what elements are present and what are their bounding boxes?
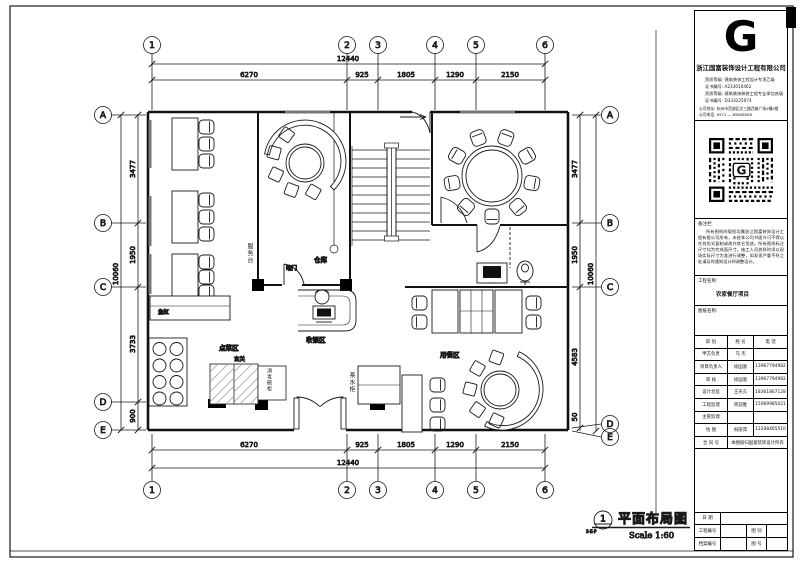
dim-total-height: 10060 (112, 263, 120, 285)
cell-phone: 13967794982 (754, 361, 787, 374)
project-no-label: 工程编号 (695, 525, 721, 538)
dim-bottom: 925 (355, 441, 368, 449)
date-row: 日 期 (695, 513, 787, 526)
label-tea-cabinet: 茶水柜 (348, 372, 354, 393)
cred-label: 证书编号: (705, 98, 723, 103)
floor-plan-drawing: 1 2 3 4 5 6 12440 6270 925 1805 1290 215… (0, 0, 800, 566)
sheet-title-callout: 1 S-E-P 平面布局图 Scale 1:60 (586, 511, 690, 541)
dim-top: 2150 (501, 71, 519, 79)
grid-row-label: E (607, 433, 613, 443)
grid-row-label: D (100, 398, 107, 408)
notes-section: 备注栏 所有图纸的版权均属浙江国富装饰设计工程有限公司所有，未经本公司书面许可不… (695, 219, 787, 276)
cell-phone: 18361867128 (754, 386, 787, 399)
cell-role: 设计总监 (695, 386, 728, 399)
dim-left: 3477 (129, 160, 137, 178)
drawing-sheet: 1 2 3 4 5 6 12440 6270 925 1805 1290 215… (0, 0, 800, 566)
project-name-label: 工程名称: (698, 278, 784, 284)
grid-row-label: E (100, 426, 106, 436)
cell-phone: 13967794982 (754, 374, 787, 387)
grid-col-label: 3 (375, 486, 381, 496)
file-no-value (721, 538, 747, 551)
type-value (767, 525, 787, 538)
dim-right: 1950 (571, 246, 579, 264)
grid-col-label: 4 (432, 486, 438, 496)
foyer-cabinet (210, 364, 286, 404)
grid-bottom: 6270 925 1805 1290 2150 12440 1 2 3 4 5 … (144, 434, 554, 499)
contract-note: 本图纸归国富装饰设计所有 (728, 437, 787, 450)
qr-code: G (709, 138, 773, 202)
grid-col-label: 5 (473, 41, 479, 51)
type-label: 图 别 (747, 525, 767, 538)
cred-value: A233010462 (725, 84, 752, 89)
address-value: 杭州市西湖区文三路西城广场2幢5楼 (717, 106, 779, 111)
grid-col-label: 1 (149, 486, 155, 496)
grid-col-label: 2 (344, 486, 350, 496)
cell-phone (754, 349, 787, 362)
dim-total-width-bottom: 12440 (337, 459, 359, 467)
grid-row-label: A (100, 111, 107, 121)
grid-top: 1 2 3 4 5 6 12440 6270 925 1805 1290 215… (144, 37, 554, 111)
grid-col-label: 6 (542, 486, 548, 496)
dim-top: 925 (355, 71, 368, 79)
dim-top: 1290 (446, 71, 464, 79)
grid-row-label: B (607, 219, 613, 229)
sheet-scale: Scale 1:60 (629, 531, 674, 541)
stove-unit (149, 338, 187, 406)
grid-col-label: 6 (542, 41, 548, 51)
label-service-desk: 服务台 (246, 243, 252, 264)
grid-row-label: C (607, 283, 613, 293)
dim-left: 3733 (129, 335, 137, 353)
company-contact: 公司地址: 杭州市西湖区文三路西城广场2幢5楼 公司电话: 0571 — 858… (695, 105, 787, 121)
grid-col-label: 5 (473, 486, 479, 496)
date-label: 日 期 (695, 513, 721, 526)
cell-role: 主管监理 (695, 412, 728, 425)
cell-name: 周迎胜 (728, 399, 754, 412)
cred-value: 建筑装饰工程设计专项乙级 (725, 77, 775, 82)
grid-row-label: A (607, 111, 614, 121)
cell-name (728, 412, 754, 425)
dim-total-height-right: 10060 (587, 263, 595, 285)
project-no-row: 工程编号 图 别 (695, 525, 787, 538)
round-booth-bottom (463, 350, 543, 430)
cred-value: D333225074 (725, 98, 752, 103)
label-storage: 仓库 (314, 255, 328, 264)
cred-value: 建筑装饰装修工程专业承包贰级 (725, 91, 784, 96)
dining-furniture (402, 290, 541, 432)
address-label: 公司地址: (699, 106, 715, 111)
dim-right: 4583 (571, 348, 579, 366)
label-cashier: 收银区 (306, 335, 326, 344)
notes-title: 备注栏 (698, 221, 784, 227)
col-header-role: 职 别 (695, 336, 728, 349)
project-name-value: 农家餐厅项目 (716, 290, 784, 298)
cell-name: 王天久 (728, 386, 754, 399)
cell-phone: 15069985021 (754, 399, 787, 412)
dim-top: 6270 (240, 71, 258, 79)
dim-top: 1805 (397, 71, 415, 79)
cell-role: 工程监理 (695, 399, 728, 412)
fish-tank (150, 296, 230, 320)
label-dining: 用餐区 (440, 350, 460, 359)
dim-left: 1950 (129, 246, 137, 264)
label-sanitizer-cabinet: 消毒碗柜 (266, 368, 271, 392)
cell-role: 绘 图 (695, 424, 728, 437)
grid-col-label: 1 (149, 41, 155, 51)
cashier-counter (298, 290, 356, 331)
grid-col-label: 3 (375, 41, 381, 51)
drawing-name-section: 图纸名称: (695, 306, 787, 336)
dim-bottom: 1290 (446, 441, 464, 449)
grid-col-label: 2 (344, 41, 350, 51)
contract-row: 合 同 号 本图纸归国富装饰设计所有 (695, 437, 787, 450)
dim-left: 900 (129, 409, 137, 422)
grid-col-label: 4 (432, 41, 438, 51)
cell-role: 甲方负责 (695, 349, 728, 362)
file-no-label: 档案编号 (695, 538, 721, 551)
cell-name: 祝丽萍 (728, 424, 754, 437)
tea-cabinet (358, 366, 400, 404)
tv-unit (477, 263, 507, 283)
grid-right: A B C D E 10060 3477 1950 4583 50 (571, 107, 619, 446)
col-header-name: 姓 名 (728, 336, 754, 349)
view-ref: S-E-P (586, 529, 597, 534)
cell-name: 徐国富 (728, 374, 754, 387)
qr-section: G (695, 121, 787, 219)
sheet-no-label: 图 号 (747, 538, 767, 551)
stairs (330, 113, 430, 253)
private-room-table (444, 128, 541, 224)
cred-label: 证书编号: (705, 84, 723, 89)
cell-phone (754, 412, 787, 425)
notes-body: 所有图纸的版权均属浙江国富装饰设计工程有限公司所有，未经本公司书面许可不得以任何… (698, 229, 784, 265)
grid-row-label: C (100, 283, 106, 293)
company-logo: G (695, 11, 787, 63)
cell-role: 审 核 (695, 374, 728, 387)
view-number: 1 (600, 515, 606, 525)
grid-row-label: B (100, 219, 106, 229)
water-dispenser-icon (517, 261, 533, 285)
dim-bottom: 6270 (240, 441, 258, 449)
sheet-frame (10, 6, 793, 557)
cell-name: 马 杰 (728, 349, 754, 362)
booth-tables-left (172, 118, 214, 302)
personnel-table: 职 别 姓 名 电 话 甲方负责 马 杰 项目负责人 徐国富 139677949… (695, 336, 787, 437)
grid-row-label: D (607, 420, 614, 430)
dim-right: 3477 (571, 160, 579, 178)
dim-right: 50 (571, 413, 579, 422)
grid-left: A B C D E 10060 3477 1950 3733 900 (95, 107, 147, 439)
title-block: G 浙江国富装饰设计工程有限公司 资质等级: 建筑装饰工程设计专项乙级 证书编号… (694, 10, 788, 551)
blank-box (695, 449, 787, 512)
col-header-phone: 电 话 (754, 336, 787, 349)
date-value (721, 513, 787, 526)
company-name: 浙江国富装饰设计工程有限公司 (695, 63, 787, 74)
cred-label: 资质等级: (705, 91, 723, 96)
project-no-value (721, 525, 747, 538)
corner-fold-mark (786, 7, 796, 28)
contract-label: 合 同 号 (695, 437, 728, 450)
phone-label: 公司电话: (699, 112, 715, 117)
label-hidden-door: 暗门 (286, 264, 297, 272)
company-credentials: 资质等级: 建筑装饰工程设计专项乙级 证书编号: A233010462 资质等级… (695, 74, 787, 105)
cred-label: 资质等级: (705, 77, 723, 82)
qr-center-logo: G (736, 163, 746, 177)
dim-bottom: 2150 (501, 441, 519, 449)
dim-bottom: 1805 (397, 441, 415, 449)
file-no-row: 档案编号 图 号 (695, 538, 787, 551)
drawing-name-label: 图纸名称: (698, 308, 784, 314)
label-fish-tank: 鱼缸 (158, 308, 170, 316)
sheet-title: 平面布局图 (618, 511, 688, 527)
label-foyer: 玄关 (234, 355, 246, 363)
sheet-no-value (767, 538, 787, 551)
project-name-section: 工程名称: 农家餐厅项目 (695, 276, 787, 306)
dim-total-width: 12440 (337, 55, 359, 63)
cell-phone: 12208465510 (754, 424, 787, 437)
cell-name: 徐国富 (728, 361, 754, 374)
cell-role: 项目负责人 (695, 361, 728, 374)
label-ordering: 点菜区 (219, 343, 239, 352)
phone-value: 0571 — 85858508 (717, 112, 752, 117)
